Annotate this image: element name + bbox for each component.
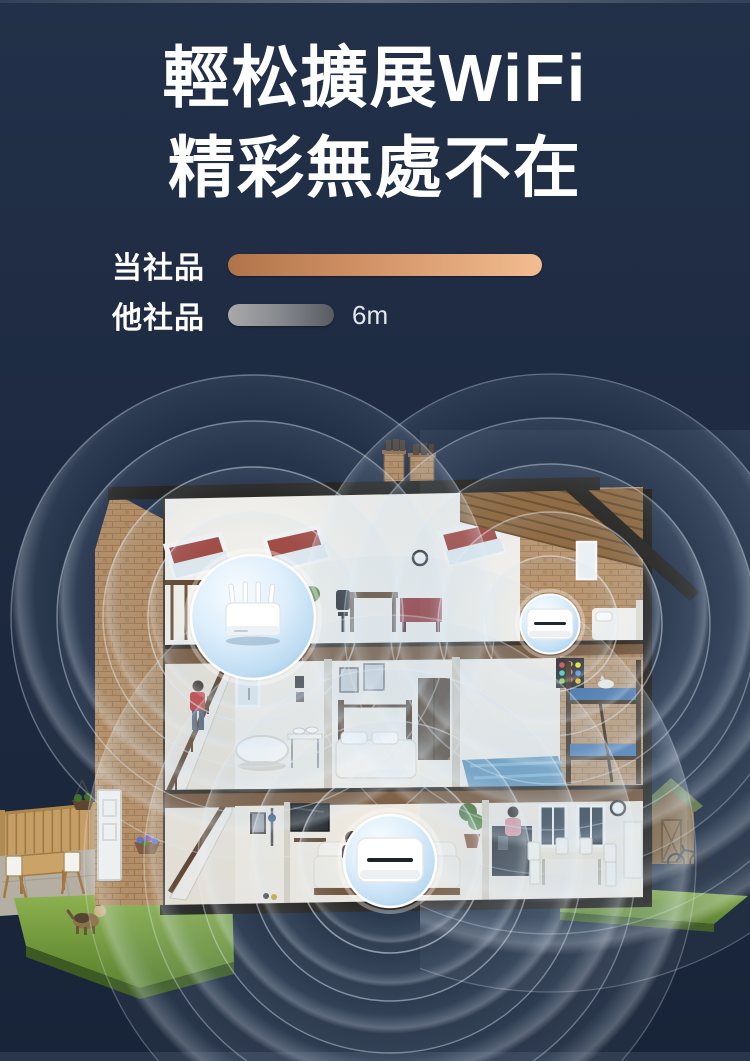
promo-banner: 輕松擴展WiFi 精彩無處不在 当社品 他社品 6m — [0, 0, 750, 1061]
wifi-extender-lower-bubble — [339, 810, 441, 912]
other-product-bar — [228, 304, 334, 326]
other-product-value: 6m — [352, 300, 388, 331]
wifi-extender-icon — [357, 838, 423, 882]
our-product-bar — [228, 254, 542, 276]
wifi-router-bubble — [186, 550, 320, 684]
wifi-ripples — [11, 256, 750, 1061]
top-divider — [0, 0, 750, 3]
headline-line1: 輕松擴展WiFi — [0, 34, 750, 124]
bottom-strip — [0, 1052, 750, 1061]
other-product-label: 他社品 — [112, 293, 208, 337]
wifi-extender-upper-bubble — [517, 591, 584, 658]
coverage-comparison: 当社品 他社品 6m — [112, 246, 560, 346]
headline-line2: 精彩無處不在 — [0, 124, 750, 214]
our-product-label: 当社品 — [112, 243, 208, 287]
comparison-row-other-product: 他社品 6m — [112, 296, 560, 334]
wifi-extender-icon — [527, 609, 573, 639]
headline: 輕松擴展WiFi 精彩無處不在 — [0, 34, 750, 214]
comparison-row-our-product: 当社品 — [112, 246, 560, 284]
